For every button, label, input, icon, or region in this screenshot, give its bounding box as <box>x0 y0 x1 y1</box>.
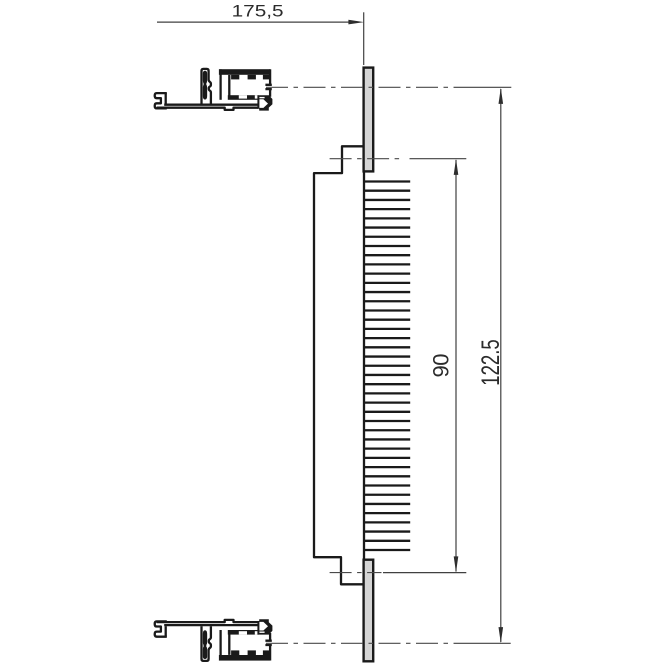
svg-text:122.5: 122.5 <box>477 339 505 386</box>
svg-text:90: 90 <box>429 354 454 378</box>
svg-text:175,5: 175,5 <box>232 1 284 20</box>
